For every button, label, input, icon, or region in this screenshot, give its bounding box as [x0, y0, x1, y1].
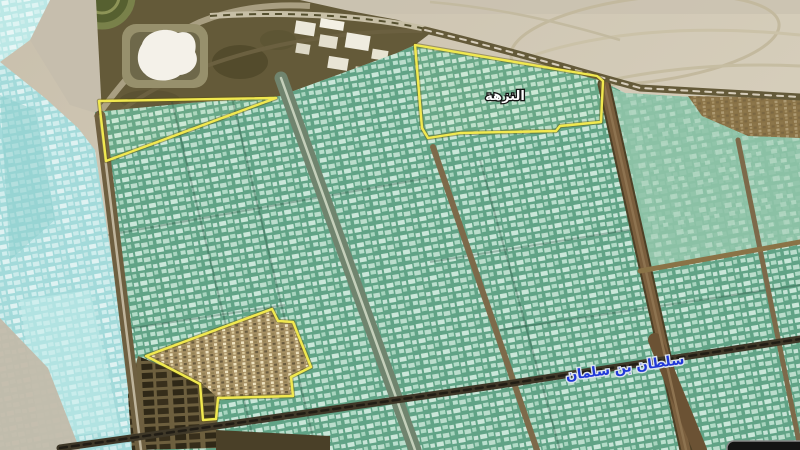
desert-top-band: [300, 0, 800, 14]
district-label: النزهة: [485, 89, 525, 104]
stadium-building: [122, 24, 208, 88]
map-canvas[interactable]: النزهة سلطان بن سلمان: [0, 0, 800, 450]
satellite-map[interactable]: النزهة سلطان بن سلمان: [0, 0, 800, 450]
caption-box: [727, 441, 800, 450]
